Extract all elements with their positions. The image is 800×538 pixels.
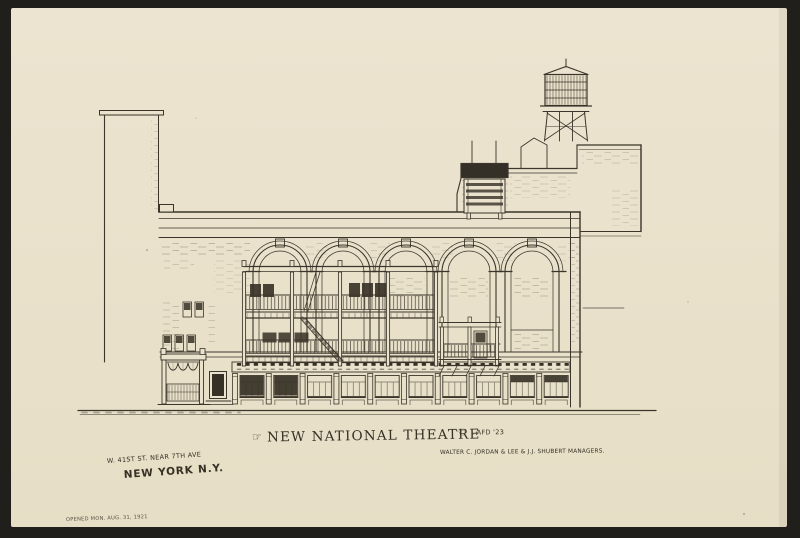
drawing-title: NEW NATIONAL THEATRE (267, 426, 481, 445)
sign-label: NATIONAL (462, 166, 506, 176)
archival-drawing-scan: NATIONAL ☞ NEW NATIONAL THEATRE ☜ . AFD … (0, 0, 800, 538)
paper-sheet (11, 8, 787, 527)
architectural-drawing: NATIONAL ☞ NEW NATIONAL THEATRE ☜ . AFD … (0, 0, 800, 538)
title-flourish-right: ☜ (456, 427, 466, 440)
paper-edge-shadow (779, 8, 787, 527)
title-flourish-left: ☞ (252, 431, 262, 444)
artist-signature: . AFD '23 (472, 428, 504, 436)
storefronts (232, 373, 570, 405)
